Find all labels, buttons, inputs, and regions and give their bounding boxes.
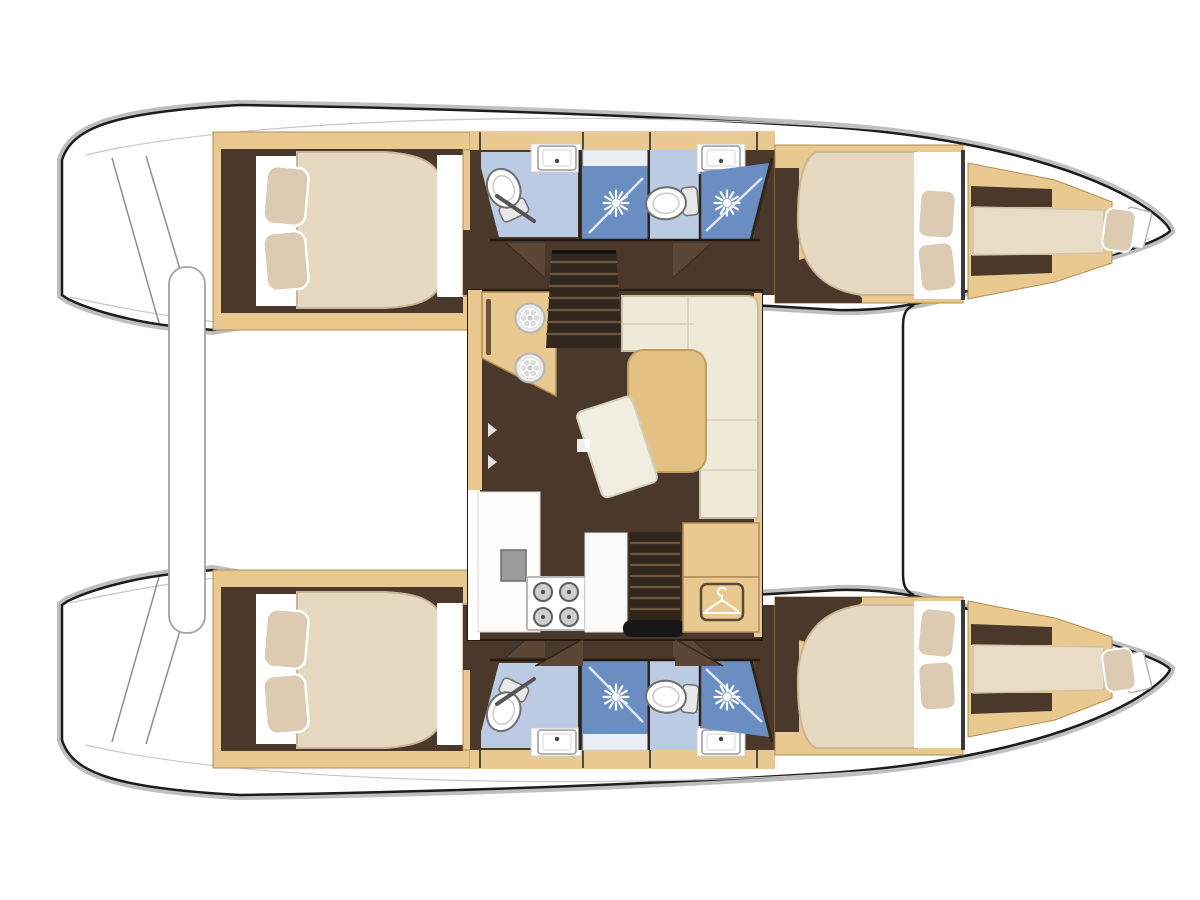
fiddle-slot <box>486 299 491 355</box>
tray <box>577 439 590 452</box>
saloon <box>468 250 762 666</box>
aft-companionway-stairs <box>623 532 685 637</box>
catamaran-floor-plan <box>0 0 1200 900</box>
stern-platform-beam <box>169 267 205 633</box>
floor-plan-svg <box>0 0 1200 900</box>
forward-companionway-stairs <box>546 250 622 348</box>
cabinet <box>683 523 759 577</box>
step-threshold <box>623 620 685 637</box>
wardrobe <box>683 577 759 632</box>
appliance <box>501 550 526 581</box>
saloon-left-wall <box>468 290 482 490</box>
galley-walkway <box>585 533 627 632</box>
forward-crossbeam-line <box>903 305 914 595</box>
